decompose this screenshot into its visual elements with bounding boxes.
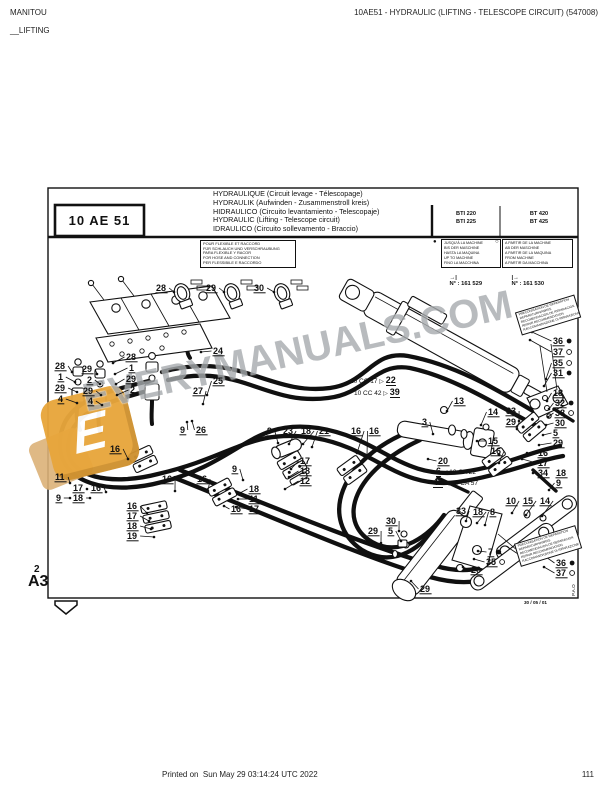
serial-right-l4: A PARTIR DA MACCHINA (505, 261, 570, 266)
filled-dot-icon (567, 339, 572, 344)
model-bt425: BT 425 (500, 218, 578, 226)
part-number-18: 18 (249, 484, 259, 494)
part-number-30: 30 (386, 516, 396, 526)
part-number-36: 36 (556, 558, 566, 568)
part-number-29: 29 (553, 438, 563, 448)
pipe-ref-cc42-num: 39 (390, 387, 400, 398)
part-number-16: 16 (127, 501, 137, 511)
part-number-5: 5 (553, 428, 558, 438)
hose-clamps (128, 412, 547, 534)
part-number-3: 3 (422, 417, 427, 427)
part-number-16: 16 (351, 426, 361, 436)
part-number-9: 9 (232, 464, 237, 474)
diagram-title-block: HYDRAULIQUE (Circuit levage - Télescopag… (213, 190, 433, 234)
part-number-1: 1 (58, 372, 63, 382)
part-number-14: 14 (488, 407, 498, 417)
rod-end-bracket (527, 386, 568, 418)
part-number-29: 29 (368, 526, 378, 536)
part-number-9: 9 (556, 478, 561, 488)
filled-dot-icon (569, 401, 574, 406)
part-number-28: 28 (55, 361, 65, 371)
pipe-ref-cc42: 10 CC 42 ▷ 39 (354, 387, 400, 397)
tube-part-3 (395, 414, 494, 458)
filled-dot-icon (570, 561, 575, 566)
right-triangle-icon: ▷ (379, 379, 384, 385)
part-number-29: 29 (82, 364, 92, 374)
model-bti220: BTI 220 (432, 210, 500, 218)
serial-right-box: A PARTIR DE LA MACHINE AB DER MASCHINE A… (502, 239, 573, 268)
cylinder-head-bracket (452, 506, 502, 570)
serial-left-box: JUSQU'À LA MACHINE BIS DER MASCHINE HAST… (441, 239, 501, 268)
part-number-35: 35 (486, 557, 496, 567)
part-number-11: 11 (249, 494, 259, 504)
clamp-ring-items (172, 280, 308, 310)
title-line-it: IDRAULICO (Circuito sollevamento - Bracc… (213, 225, 433, 234)
part-number-7: 7 (488, 547, 493, 557)
part-number-17: 17 (73, 483, 83, 493)
part-number-29: 29 (420, 584, 430, 594)
part-number-19: 19 (127, 531, 137, 541)
pipe-ref-cc42-label: 10 CC 42 (354, 390, 381, 397)
part-number-17: 17 (538, 458, 548, 468)
repair-sign-lower: PRECONISATION DE REPARATION REPARATURHIN… (514, 525, 582, 566)
part-number-21: 21 (319, 426, 329, 436)
pipe-ref-ca57-label: 10 CA 57 (451, 480, 478, 487)
part-number-31: 31 (553, 368, 563, 378)
part-number-34: 34 (538, 468, 548, 478)
pipe-ref-cc17-label: 10 CC 17 (350, 378, 377, 385)
manual-page: MANITOU 10AE51 - HYDRAULIC (LIFTING - TE… (0, 0, 612, 792)
pipe-ref-ca57: 40 ◁ 10 CA 57 (433, 477, 478, 487)
printed-timestamp: Printed on Sun May 29 03:14:24 UTC 2022 (162, 770, 318, 779)
brand-text: MANITOU (10, 8, 47, 17)
part-number-16: 16 (91, 483, 101, 493)
part-number-17: 17 (249, 504, 259, 514)
pipe-ref-cc17: 10 CC 17 ▷ 22 (350, 375, 396, 385)
part-number-35: 35 (553, 358, 563, 368)
part-number-9: 9 (56, 493, 61, 503)
part-number-5: 5 (388, 526, 393, 536)
part-number-14: 14 (540, 496, 550, 506)
part-number-37: 37 (553, 347, 563, 357)
part-number-15: 15 (488, 436, 498, 446)
part-number-16: 16 (231, 504, 241, 514)
model-bti225: BTI 225 (432, 218, 500, 226)
serial-left-ref: →| N° : 161 529 (443, 269, 482, 293)
part-number-18: 18 (301, 426, 311, 436)
part-number-33: 33 (506, 406, 516, 416)
part-number-38: 38 (555, 408, 565, 418)
part-number-23: 23 (283, 426, 293, 436)
serial-right-ref: |→ N° : 161 530 (505, 269, 544, 293)
plan-date: 30 / 05 / 01 (524, 600, 547, 605)
part-number-13: 13 (454, 396, 464, 406)
part-number-17: 17 (127, 511, 137, 521)
left-triangle-icon: ◁ (445, 481, 450, 487)
part-number-8: 8 (490, 507, 495, 517)
section-label: __LIFTING (10, 26, 50, 35)
part-number-16: 16 (538, 448, 548, 458)
model-bt420: BT 420 (500, 210, 578, 218)
models-right: BT 420 BT 425 (500, 207, 578, 226)
part-number-16: 16 (491, 446, 501, 456)
part-number-36: 36 (553, 336, 563, 346)
filled-dot-icon (567, 371, 572, 376)
document-title: 10AE51 - HYDRAULIC (LIFTING - TELESCOPE … (354, 8, 598, 17)
page-number: 111 (582, 770, 594, 779)
part-number-30: 30 (555, 418, 565, 428)
part-number-10: 10 (506, 496, 516, 506)
hose-note-it: PER FLESSIBILE E RACCORDO (203, 261, 293, 266)
pao-label: P.A.O (571, 584, 576, 596)
pipe-ref-ca57-num: 40 (433, 477, 443, 488)
part-number-29: 29 (506, 417, 516, 427)
part-number-17: 17 (300, 456, 310, 466)
part-number-18: 18 (553, 388, 563, 398)
part-number-33: 33 (456, 506, 466, 516)
pipe-ref-ca22: 6 ◁ 10 CA 22 (436, 466, 476, 476)
part-number-29: 29 (55, 383, 65, 393)
page-code: 10 AE 51 (55, 205, 144, 236)
pipe-ref-ca22-num: 6 (436, 466, 441, 477)
part-number-18: 18 (127, 521, 137, 531)
part-number-18: 18 (300, 466, 310, 476)
part-number-18: 18 (556, 468, 566, 478)
part-number-32: 32 (555, 398, 565, 408)
serial-left-bullet: ● (433, 239, 437, 245)
open-dot-icon (567, 361, 572, 366)
part-number-16: 16 (369, 426, 379, 436)
part-number-9: 9 (180, 425, 185, 435)
part-number-20: 20 (471, 565, 481, 575)
part-number-12: 12 (300, 476, 310, 486)
sheet-format: A3 (28, 573, 48, 591)
filled-dot-icon (496, 550, 501, 555)
right-triangle-icon: ▷ (383, 391, 388, 397)
part-number-28: 28 (156, 283, 166, 293)
open-dot-icon (570, 571, 575, 576)
part-number-18: 18 (73, 493, 83, 503)
pipe-ref-cc17-num: 22 (386, 375, 396, 386)
part-number-29: 29 (206, 283, 216, 293)
serial-right-number: N° : 161 530 (511, 281, 544, 287)
serial-left-number: N° : 161 529 (449, 281, 482, 287)
hose-note-box: POUR FLEXIBLE ET RACCORD FÜR SCHLAUCH UN… (200, 240, 296, 268)
part-number-18: 18 (473, 507, 483, 517)
models-left: BTI 220 BTI 225 (432, 207, 500, 226)
sheet-arrow-icon (55, 601, 77, 614)
open-dot-icon (569, 411, 574, 416)
pipe-ref-ca22-label: 10 CA 22 (449, 469, 476, 476)
part-number-30: 30 (254, 283, 264, 293)
serial-left-l4: FINO LA MACCHINA (444, 261, 498, 266)
part-number-20: 20 (438, 456, 448, 466)
part-number-15: 15 (523, 496, 533, 506)
open-dot-icon (567, 350, 572, 355)
telescope-cylinder (388, 487, 489, 605)
open-dot-icon (500, 560, 505, 565)
part-number-16: 16 (197, 474, 207, 484)
part-number-28: 28 (126, 352, 136, 362)
watermark-text: EVERYMANUALS.COM (79, 276, 548, 422)
part-number-26: 26 (196, 425, 206, 435)
part-number-16: 16 (162, 474, 172, 484)
part-number-37: 37 (556, 568, 566, 578)
serial-right-bullet: ○ (495, 239, 499, 245)
part-number-9: 9 (267, 426, 272, 436)
left-triangle-icon: ◁ (443, 470, 448, 476)
